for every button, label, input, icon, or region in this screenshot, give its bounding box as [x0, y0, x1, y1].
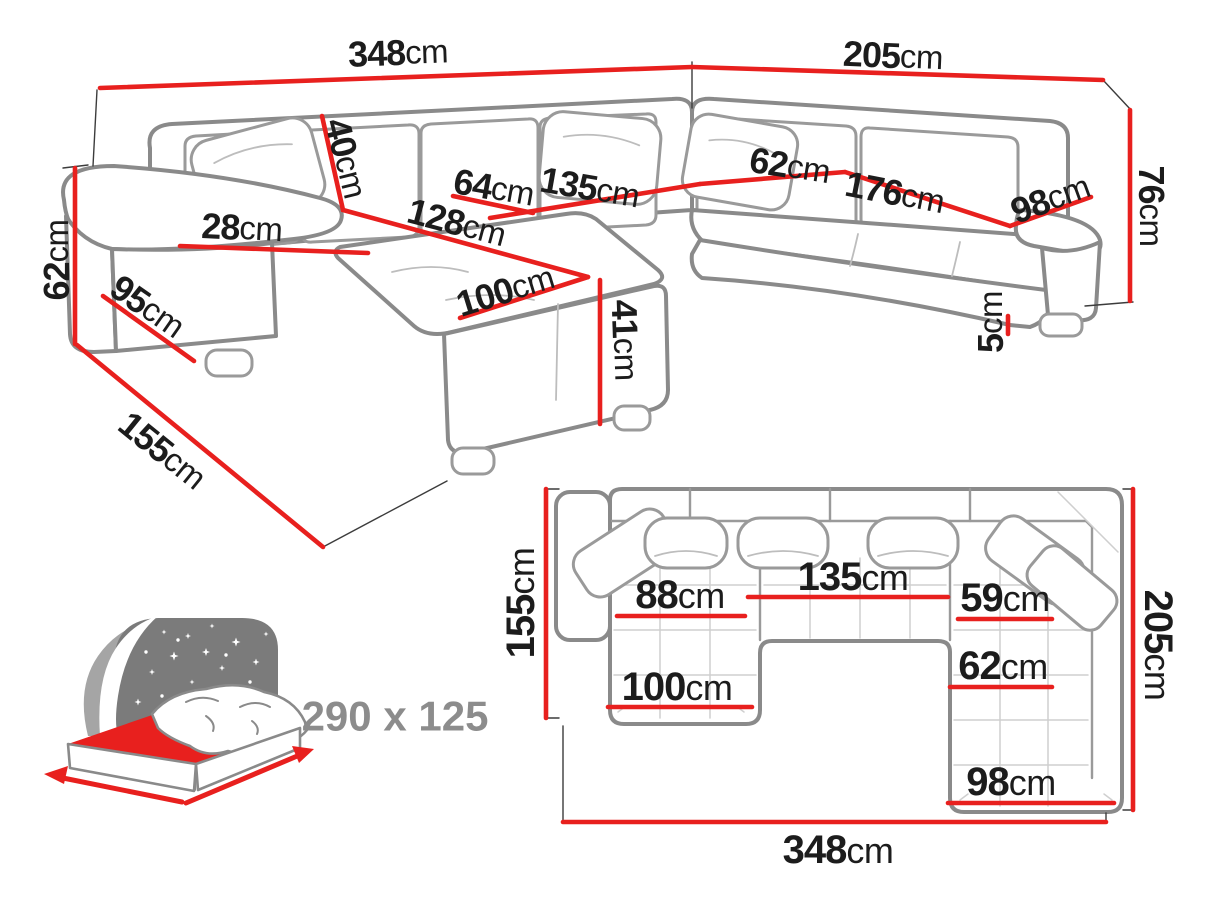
plan-label-205: 205cm	[1136, 590, 1180, 701]
sofa-leg	[1040, 314, 1082, 336]
sofa-leg	[614, 406, 650, 430]
dim-label-28: 28cm	[200, 204, 283, 249]
sleeping-size-label: 290 x 125	[302, 693, 489, 740]
mattress-corner-crease	[195, 764, 196, 790]
plan-label-88: 88cm	[635, 573, 725, 617]
sofa-3d-drawing	[63, 99, 1101, 474]
plan-label-348: 348cm	[783, 828, 894, 872]
plan-view: 155cm 205cm 348cm 88cm 135cm 59cm 62cm 1…	[499, 489, 1180, 872]
plan-label-62: 62cm	[958, 644, 1048, 688]
dim-label-76: 76cm	[1132, 165, 1173, 246]
dim-line-155	[77, 345, 323, 547]
perspective-view: 348cm 205cm 76cm 62cm 95cm 155cm 28cm 40…	[36, 30, 1173, 547]
dim-label-348: 348cm	[347, 30, 448, 74]
plan-label-135: 135cm	[798, 555, 909, 599]
dim-label-41: 41cm	[604, 299, 648, 381]
dimension-diagram: 348cm 205cm 76cm 62cm 95cm 155cm 28cm 40…	[0, 0, 1214, 911]
sofa-leg	[206, 350, 252, 376]
arrow-head-left	[44, 766, 68, 784]
dim-label-62-left: 62cm	[36, 219, 77, 300]
diagram-svg: 348cm 205cm 76cm 62cm 95cm 155cm 28cm 40…	[0, 0, 1214, 911]
plan-pillow	[645, 518, 727, 568]
plan-label-100: 100cm	[622, 665, 733, 709]
right-armrest-side	[1042, 242, 1100, 320]
sofa-leg	[452, 448, 494, 474]
plan-label-59: 59cm	[960, 576, 1050, 620]
plan-label-98: 98cm	[966, 760, 1056, 804]
sleeping-function-icon	[44, 616, 314, 803]
plan-label-155: 155cm	[499, 548, 543, 659]
dim-label-5: 5cm	[970, 291, 1011, 353]
dim-label-205: 205cm	[842, 32, 944, 77]
